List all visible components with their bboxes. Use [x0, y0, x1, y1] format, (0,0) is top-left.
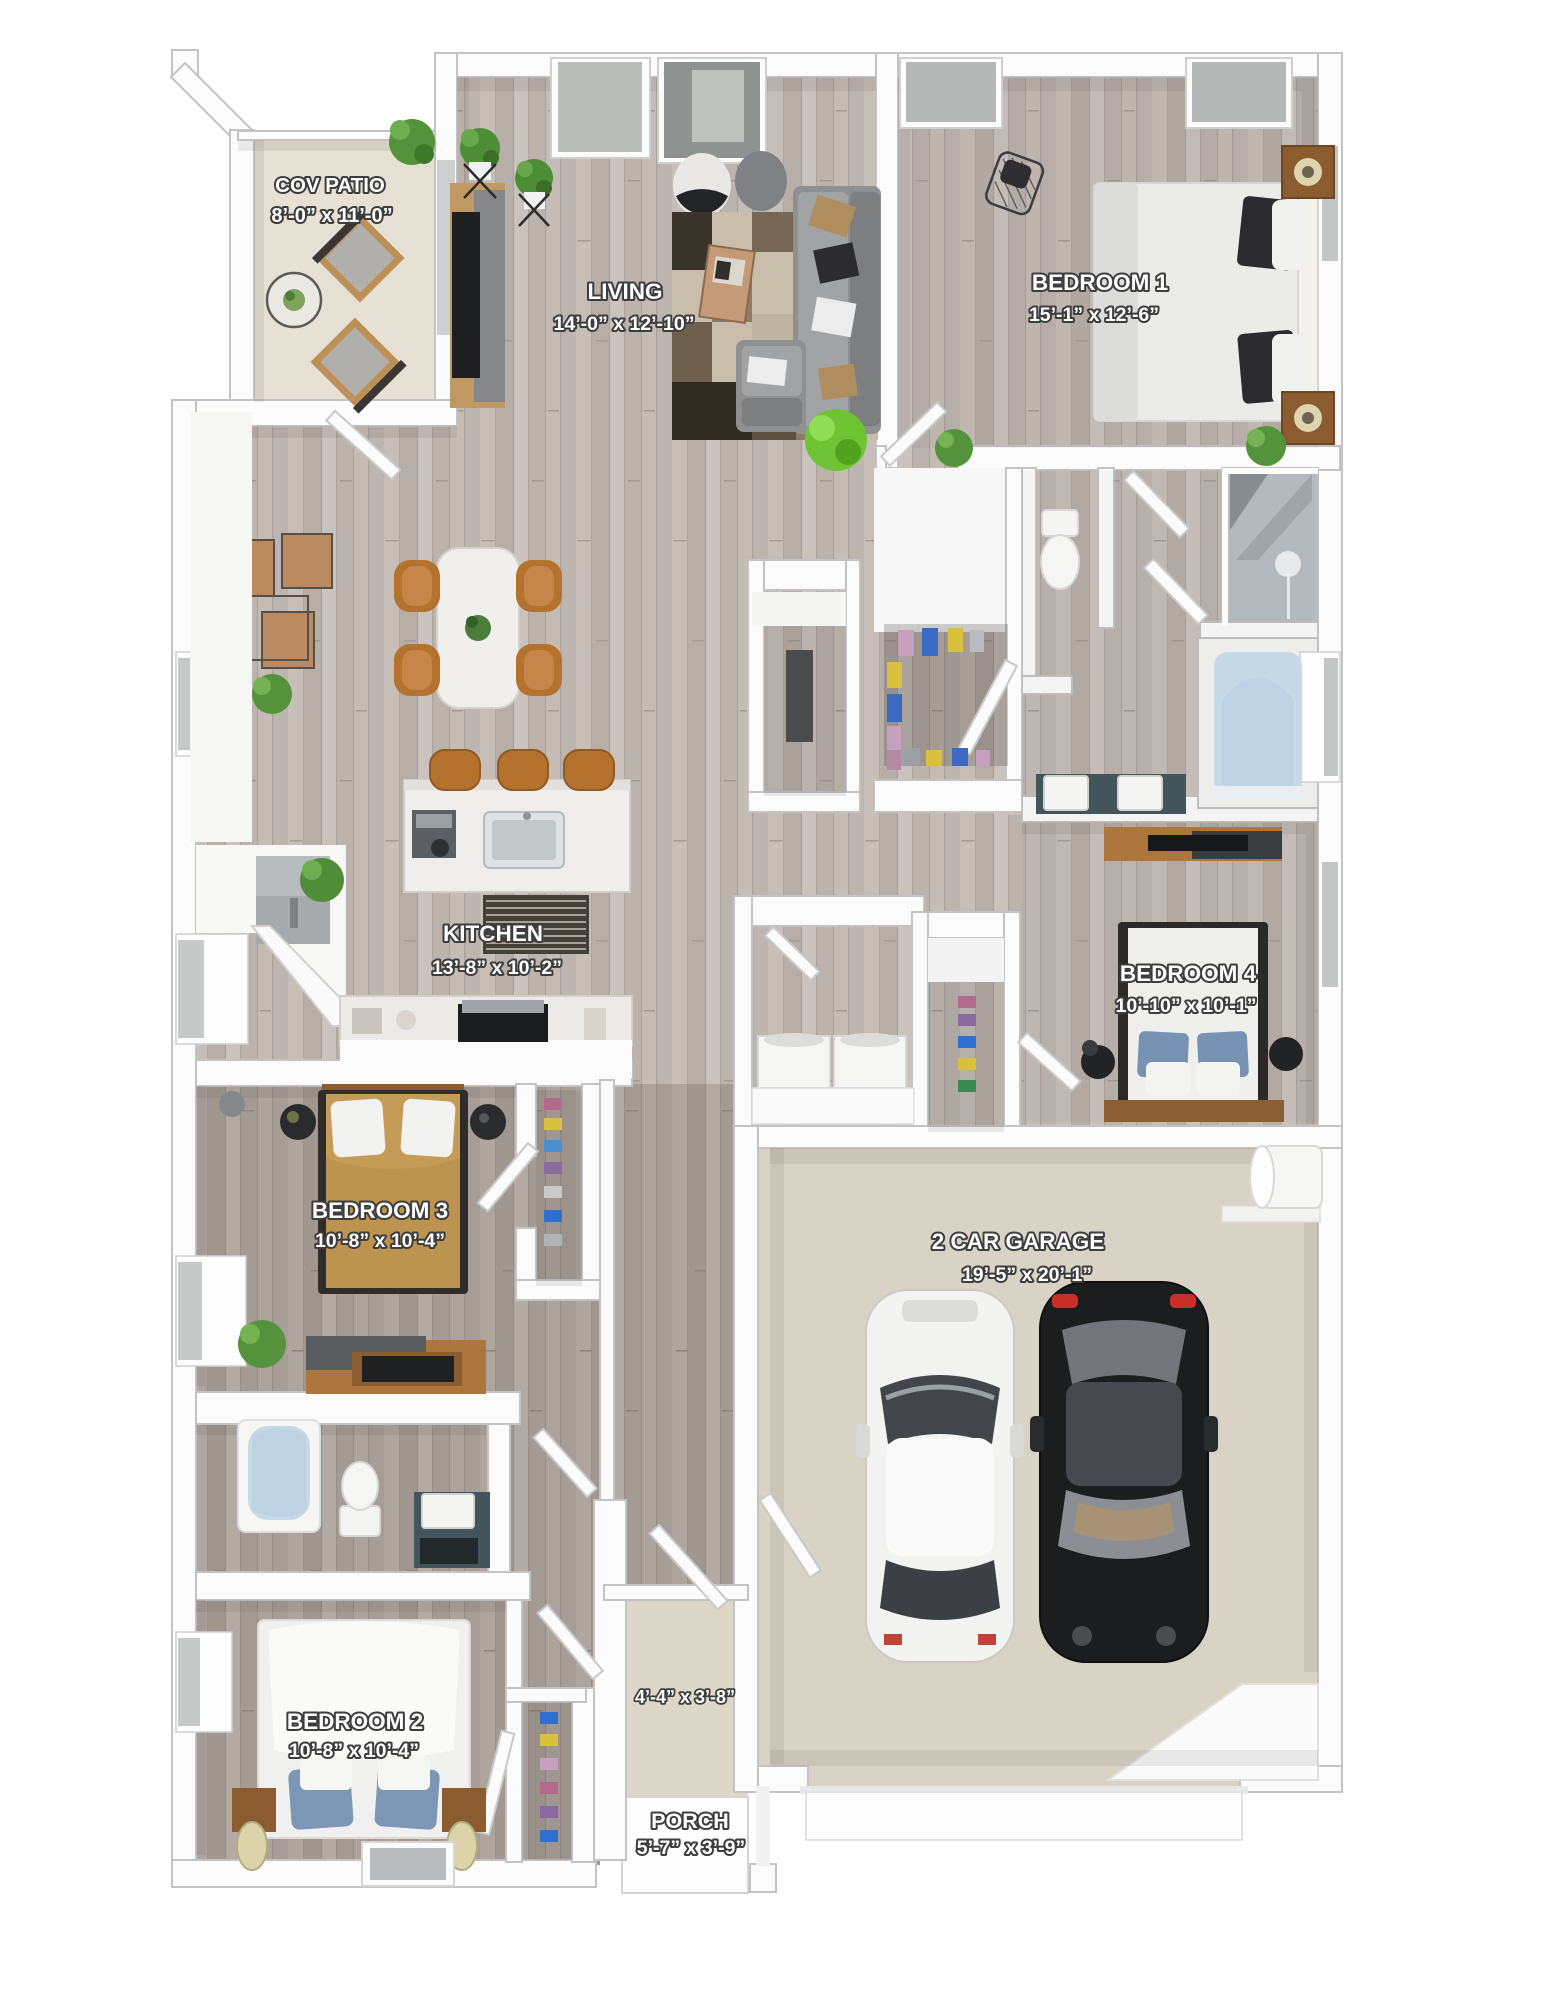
svg-text:14’-0” x 12’-10”: 14’-0” x 12’-10” [554, 313, 695, 335]
svg-text:5’-7” x 3’-9”: 5’-7” x 3’-9” [637, 1837, 745, 1859]
svg-text:10’-8” x 10’-4”: 10’-8” x 10’-4” [315, 1230, 445, 1252]
svg-text:10’-8” x 10’-4”: 10’-8” x 10’-4” [289, 1740, 419, 1762]
svg-text:19’-5” x 20’-1”: 19’-5” x 20’-1” [962, 1264, 1092, 1286]
svg-text:KITCHEN: KITCHEN [443, 921, 543, 946]
svg-text:BEDROOM 2: BEDROOM 2 [287, 1709, 423, 1734]
svg-text:PORCH: PORCH [651, 1809, 729, 1833]
svg-text:BEDROOM 3: BEDROOM 3 [312, 1198, 448, 1223]
svg-text:8’-0” x 11’-0”: 8’-0” x 11’-0” [271, 205, 392, 227]
svg-text:10’-10” x 10’-1”: 10’-10” x 10’-1” [1116, 995, 1257, 1017]
svg-text:15’-1” x 12’-6”: 15’-1” x 12’-6” [1029, 304, 1159, 326]
svg-text:4’-4” x 3’-8”: 4’-4” x 3’-8” [635, 1687, 735, 1707]
svg-text:BEDROOM 1: BEDROOM 1 [1032, 270, 1168, 295]
svg-text:13’-8” x 10’-2”: 13’-8” x 10’-2” [432, 957, 562, 979]
svg-text:BEDROOM 4: BEDROOM 4 [1120, 961, 1257, 986]
svg-text:LIVING: LIVING [587, 279, 662, 304]
svg-text:2 CAR GARAGE: 2 CAR GARAGE [932, 1229, 1105, 1254]
svg-text:COV PATIO: COV PATIO [275, 174, 385, 197]
